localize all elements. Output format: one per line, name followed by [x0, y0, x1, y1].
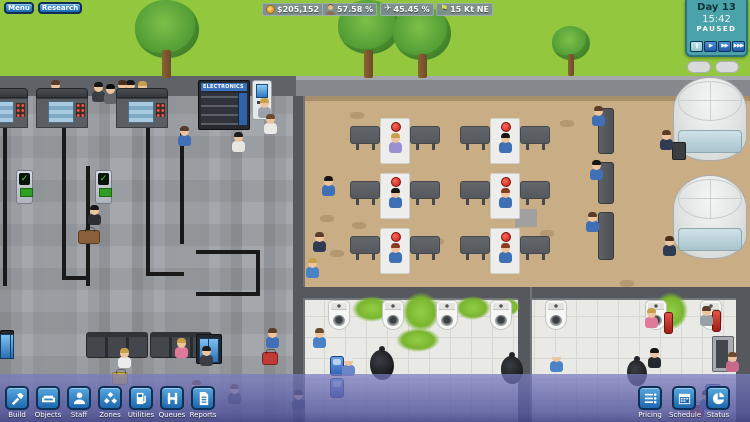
- slab-h: [520, 126, 550, 144]
- slab-h: [460, 236, 490, 254]
- case: [262, 352, 278, 365]
- price-list-icon: [643, 391, 658, 406]
- qline: [3, 128, 7, 286]
- person: [586, 221, 599, 232]
- person: [322, 185, 335, 196]
- vent: [715, 61, 739, 73]
- person: [726, 361, 739, 372]
- schedule-button[interactable]: Schedule: [669, 386, 699, 419]
- pause-button[interactable]: ‖: [690, 41, 703, 52]
- qline: [146, 128, 150, 276]
- goo: [402, 292, 440, 332]
- flight-value: 45.45 %: [394, 4, 430, 15]
- research-button[interactable]: Research: [38, 2, 82, 14]
- money-stat: $205,152: [262, 3, 323, 16]
- person: [592, 115, 605, 126]
- pricing-button[interactable]: Pricing: [635, 386, 665, 419]
- queues-button[interactable]: Queues: [157, 386, 187, 419]
- person: [313, 337, 326, 348]
- flight-stat: ✈ 45.45 %: [380, 3, 434, 16]
- reports-button[interactable]: Reports: [188, 386, 218, 419]
- person: [118, 357, 131, 368]
- person: [178, 135, 191, 146]
- pause-state-label: PAUSED: [687, 25, 746, 34]
- vent: [687, 61, 711, 73]
- status-button[interactable]: Status: [703, 386, 733, 419]
- time-label: 15:42: [687, 14, 746, 25]
- goo: [455, 296, 491, 320]
- toilet: [382, 300, 404, 330]
- tree-t: [162, 50, 171, 78]
- money-value: $205,152: [277, 4, 319, 15]
- sec-desk: [0, 88, 28, 98]
- tree-t: [418, 54, 427, 78]
- fuel-pump-icon: [134, 391, 149, 406]
- passenger-stat: 57.58 %: [322, 3, 377, 16]
- person: [88, 214, 101, 225]
- sec-desk: [116, 88, 168, 98]
- coin-icon: [266, 5, 275, 14]
- wind-stat: ⚑ 15 Kt NE: [436, 3, 493, 16]
- person: [306, 267, 319, 278]
- bin: [712, 310, 721, 332]
- person: [175, 347, 188, 358]
- scene-objects: [0, 0, 750, 422]
- zones-button[interactable]: Zones: [95, 386, 125, 419]
- xray: [0, 98, 28, 128]
- bench: [86, 332, 148, 358]
- stanchion-icon: [165, 391, 180, 406]
- person: [499, 142, 512, 153]
- diamonds-icon: [103, 391, 118, 406]
- slab-h: [410, 126, 440, 144]
- person: [550, 361, 563, 372]
- slab-h: [350, 181, 380, 199]
- person: [648, 357, 661, 368]
- slab-h: [460, 126, 490, 144]
- slab-h: [410, 181, 440, 199]
- pie-chart-icon: [711, 391, 726, 406]
- fleck: [620, 280, 634, 287]
- person: [499, 197, 512, 208]
- xray: [116, 98, 168, 128]
- qline: [256, 250, 260, 296]
- fast-forward-button[interactable]: ▶▶: [718, 41, 731, 52]
- calendar-icon: [677, 391, 692, 406]
- goo: [396, 328, 440, 352]
- play-button[interactable]: ▶: [704, 41, 717, 52]
- tower: [673, 175, 747, 259]
- fleck: [352, 222, 366, 229]
- scanner: [16, 170, 33, 204]
- person: [313, 241, 326, 252]
- person: [700, 315, 713, 326]
- person: [499, 252, 512, 263]
- scanner: [95, 170, 112, 204]
- person: [232, 141, 245, 152]
- person: [266, 337, 279, 348]
- game-viewport[interactable]: ELECTRONICS Menu Research $205,152 57.58…: [0, 0, 750, 422]
- sofa-icon: [41, 391, 56, 406]
- qline: [196, 292, 258, 296]
- qline: [146, 272, 184, 276]
- slab-h: [410, 236, 440, 254]
- slab-h: [520, 236, 550, 254]
- slab-h: [520, 181, 550, 199]
- person: [389, 142, 402, 153]
- person: [200, 355, 213, 366]
- passenger-icon: [326, 5, 335, 15]
- passenger-value: 57.58 %: [337, 4, 373, 15]
- case: [78, 230, 100, 244]
- bin: [664, 312, 673, 334]
- fleck: [560, 120, 574, 127]
- xray: [36, 98, 88, 128]
- person: [645, 317, 658, 328]
- toilet: [436, 300, 458, 330]
- person-icon: [72, 391, 87, 406]
- clock-panel: Day 13 15:42 PAUSED ‖ ▶ ▶▶ ▶▶▶: [685, 0, 748, 57]
- toilet: [490, 300, 512, 330]
- slab-h: [350, 236, 380, 254]
- slab-h: [460, 181, 490, 199]
- build-button[interactable]: Build: [2, 386, 32, 419]
- qline: [196, 250, 260, 254]
- sec-desk: [36, 88, 88, 98]
- slab-h: [350, 126, 380, 144]
- fleck: [350, 112, 364, 119]
- objects-button[interactable]: Objects: [33, 386, 63, 419]
- fleck: [320, 215, 334, 222]
- toilet: [328, 300, 350, 330]
- qline: [86, 166, 90, 286]
- fastest-forward-button[interactable]: ▶▶▶: [732, 41, 745, 52]
- tree-t: [568, 54, 574, 76]
- person: [660, 139, 673, 150]
- day-label: Day 13: [687, 2, 746, 14]
- fleck: [330, 250, 344, 257]
- person: [389, 197, 402, 208]
- qline: [62, 128, 66, 280]
- vbench: [598, 212, 614, 260]
- wind-flag-icon: ⚑: [440, 5, 448, 14]
- document-icon: [196, 391, 211, 406]
- person: [590, 169, 603, 180]
- utilities-button[interactable]: Utilities: [126, 386, 156, 419]
- qline: [62, 276, 90, 280]
- board: [0, 330, 14, 358]
- person: [389, 252, 402, 263]
- wind-value: 15 Kt NE: [450, 4, 489, 15]
- cart: [672, 142, 686, 160]
- staff-button[interactable]: Staff: [64, 386, 94, 419]
- hammer-icon: [10, 391, 25, 406]
- person: [264, 123, 277, 134]
- toilet: [545, 300, 567, 330]
- plane-icon: ✈: [384, 5, 392, 14]
- tree-t: [364, 50, 373, 78]
- menu-button[interactable]: Menu: [4, 2, 34, 14]
- speed-controls: ‖ ▶ ▶▶ ▶▶▶: [690, 41, 745, 52]
- person: [663, 245, 676, 256]
